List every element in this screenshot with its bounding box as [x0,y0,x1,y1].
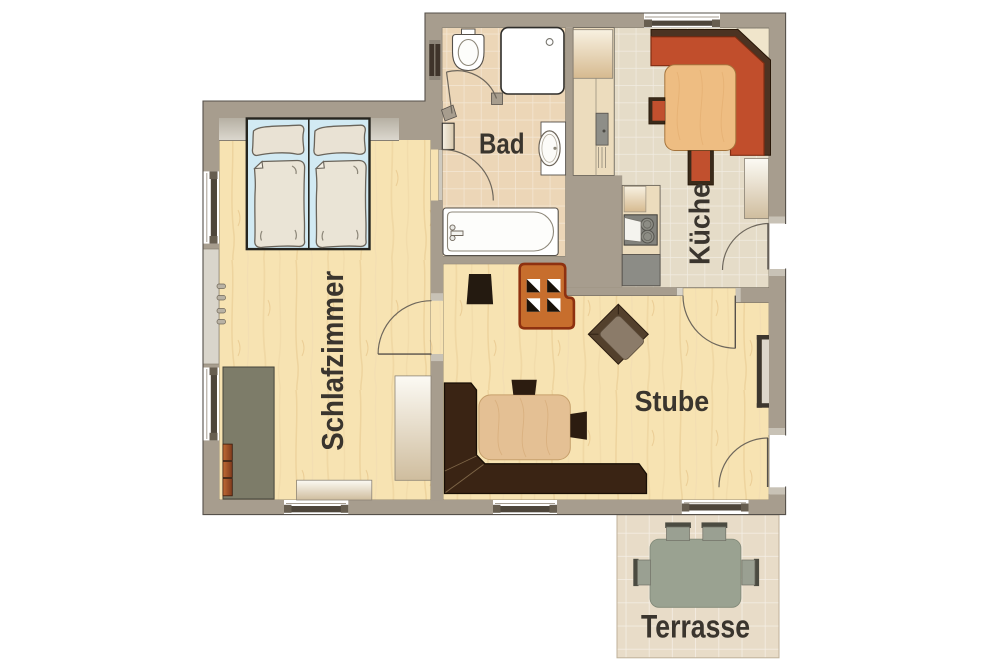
svg-text:Küche: Küche [685,183,717,265]
svg-text:Schlafzimmer: Schlafzimmer [316,271,350,451]
svg-text:Bad: Bad [479,129,525,161]
svg-text:Stube: Stube [635,386,710,418]
svg-text:Terrasse: Terrasse [641,609,750,645]
